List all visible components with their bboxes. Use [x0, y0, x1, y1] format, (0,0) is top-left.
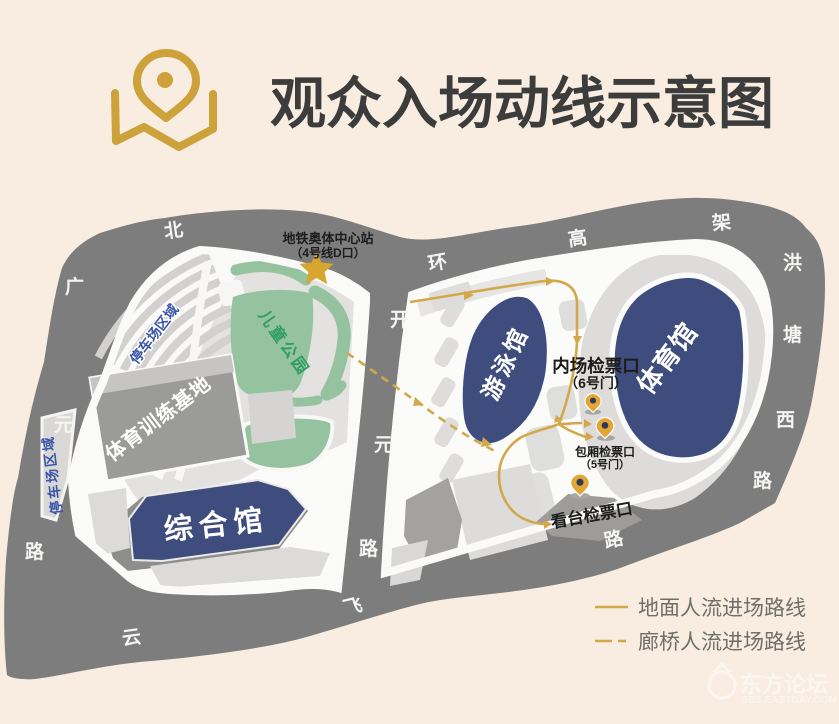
svg-text:塘: 塘: [783, 323, 802, 346]
svg-text:西: 西: [776, 410, 795, 431]
svg-text:地面人流进场路线: 地面人流进场路线: [638, 597, 806, 620]
svg-text:架: 架: [710, 211, 732, 235]
svg-text:（6号门）: （6号门）: [564, 375, 628, 391]
svg-text:东方论坛: 东方论坛: [740, 672, 828, 697]
svg-text:北: 北: [163, 219, 185, 243]
svg-text:内场检票口: 内场检票口: [552, 356, 640, 376]
svg-text:路: 路: [753, 469, 773, 492]
svg-text:地铁奥体中心站: 地铁奥体中心站: [282, 231, 373, 246]
svg-text:包厢检票口: 包厢检票口: [574, 444, 635, 459]
svg-text:观众入场动线示意图: 观众入场动线示意图: [270, 72, 774, 135]
svg-text:路: 路: [359, 537, 379, 560]
svg-text:元: 元: [54, 415, 73, 436]
svg-text:（4号线D口）: （4号线D口）: [290, 245, 365, 260]
svg-text:环: 环: [427, 251, 449, 275]
svg-text:广: 广: [65, 275, 84, 298]
svg-text:廊桥人流进场路线: 廊桥人流进场路线: [638, 631, 806, 654]
svg-text:（5号门）: （5号门）: [580, 457, 630, 471]
svg-text:云: 云: [121, 627, 143, 650]
svg-text:高: 高: [567, 226, 589, 251]
svg-text:BBS.EASTDAY.COM: BBS.EASTDAY.COM: [741, 695, 837, 706]
svg-text:洪: 洪: [783, 252, 802, 274]
svg-text:路: 路: [25, 540, 45, 563]
svg-text:开: 开: [390, 310, 409, 331]
svg-text:元: 元: [374, 435, 393, 456]
